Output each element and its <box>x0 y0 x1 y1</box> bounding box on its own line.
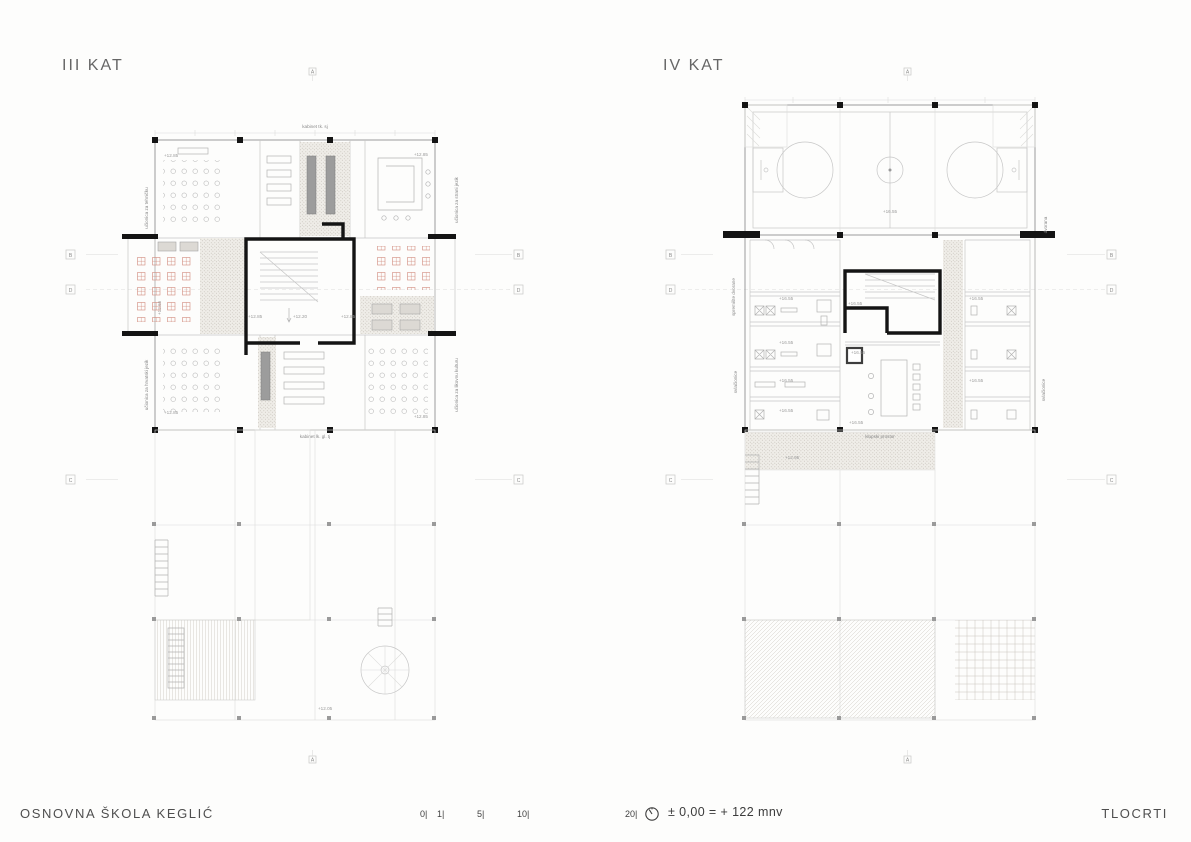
scale-tick-5: 5| <box>477 809 484 819</box>
svg-text:+12.85: +12.85 <box>414 414 429 419</box>
scale-tick-10: 10| <box>517 809 529 819</box>
svg-text:B: B <box>69 253 73 259</box>
svg-text:svlačionice: svlačionice <box>733 370 738 393</box>
terrace <box>742 430 1036 720</box>
svg-text:+16.55: +16.55 <box>848 301 863 306</box>
sheet-title: TLOCRTI <box>1101 806 1168 821</box>
svg-text:B: B <box>669 253 673 259</box>
svg-text:+12.85: +12.85 <box>341 314 356 319</box>
plan-iii-kat: kabinet tk. sj <box>60 60 540 780</box>
svg-text:učionica za strani jezik: učionica za strani jezik <box>454 176 459 223</box>
svg-text:B: B <box>517 253 521 259</box>
plan-iv-kat: +16.55 +16.55 +16.55 +16.55 +16.55 +16.5… <box>655 60 1135 780</box>
svg-text:+16.55: +16.55 <box>849 420 864 425</box>
scale-tick-1: 1| <box>437 809 444 819</box>
svg-text:učionica za likovnu kulturu: učionica za likovnu kulturu <box>454 358 459 412</box>
svg-text:+16.55: +16.55 <box>969 378 984 383</box>
classroom-furniture <box>132 148 430 414</box>
svg-text:svlačionice: svlačionice <box>1041 378 1046 401</box>
club-room <box>847 348 920 416</box>
svg-text:+16.55: +16.55 <box>779 408 794 413</box>
svg-text:C: C <box>1110 478 1114 484</box>
svg-text:+12.05: +12.05 <box>318 706 333 711</box>
svg-text:dvorana: dvorana <box>1043 216 1048 233</box>
svg-text:spremište dvorane: spremište dvorane <box>731 278 736 316</box>
spiral-stair <box>361 608 409 694</box>
svg-text:+12.95: +12.95 <box>785 455 800 460</box>
svg-text:D: D <box>669 288 673 294</box>
scale-tick-20: 20| <box>625 809 637 819</box>
svg-text:učionica za tehničku: učionica za tehničku <box>144 187 149 229</box>
svg-text:C: C <box>669 478 673 484</box>
svg-text:+16.55: +16.55 <box>883 209 898 214</box>
svg-text:+16.55: +16.55 <box>851 350 866 355</box>
svg-text:D: D <box>69 288 73 294</box>
sports-hall <box>745 105 1035 235</box>
svg-text:+12.85: +12.85 <box>164 153 179 158</box>
svg-text:+12.85: +12.85 <box>248 314 263 319</box>
structural-columns <box>723 102 1055 433</box>
svg-text:+12.20: +12.20 <box>293 314 308 319</box>
dimension-ticks-top <box>745 97 1035 103</box>
svg-text:kabinet lk. gl. tj: kabinet lk. gl. tj <box>300 434 330 439</box>
svg-text:C: C <box>517 478 521 484</box>
svg-text:C: C <box>69 478 73 484</box>
svg-text:+16.55: +16.55 <box>779 296 794 301</box>
svg-text:+12.65: +12.65 <box>157 300 162 315</box>
svg-text:klupski prostor: klupski prostor <box>865 434 895 439</box>
datum-note: ± 0,00 = + 122 mnv <box>668 805 783 819</box>
svg-text:B: B <box>1110 253 1114 259</box>
room-label-kabinet-top: kabinet tk. sj <box>302 124 328 129</box>
svg-text:+16.55: +16.55 <box>779 340 794 345</box>
svg-text:+16.55: +16.55 <box>969 296 984 301</box>
room-labels: klupski prostor spremište dvorane svlači… <box>731 216 1048 439</box>
svg-text:D: D <box>1110 288 1114 294</box>
svg-text:+12.85: +12.85 <box>414 152 429 157</box>
dimension-ticks-top <box>155 130 435 136</box>
svg-text:+16.55: +16.55 <box>779 378 794 383</box>
svg-text:učionica za hrvatski jezik: učionica za hrvatski jezik <box>144 359 149 410</box>
svg-text:+12.85: +12.85 <box>164 410 179 415</box>
project-title: OSNOVNA ŠKOLA KEGLIĆ <box>20 806 214 821</box>
grid-markers: A A B B D D C C <box>66 68 523 764</box>
scale-tick-0: 0| <box>420 809 427 819</box>
north-arrow-icon <box>644 806 660 827</box>
terrace <box>152 430 436 720</box>
svg-text:D: D <box>517 288 521 294</box>
